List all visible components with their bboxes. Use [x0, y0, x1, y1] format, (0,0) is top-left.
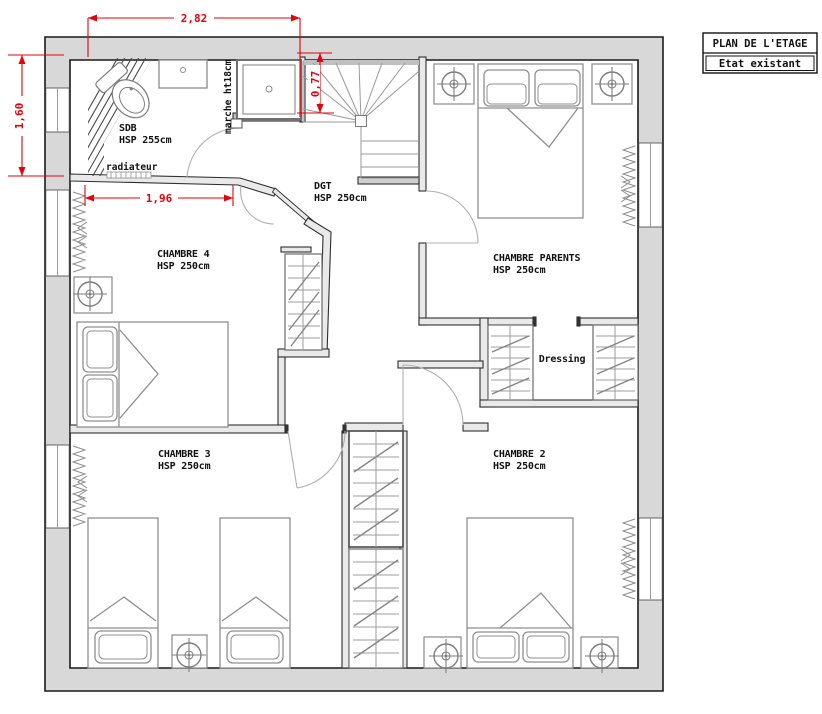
label-chambre2: CHAMBRE 2 [493, 449, 546, 460]
radiator-chambre3 [73, 446, 87, 526]
label-radiator: radiateur [106, 162, 158, 173]
radiator-chambre-parents [621, 146, 635, 226]
dim-stair-width-label: 0,77 [309, 71, 322, 98]
sink [159, 60, 207, 88]
dim-top-width-label: 2,82 [181, 12, 208, 25]
floor-plan-drawing: 2,82 1,60 0,77 [0, 0, 822, 714]
floor-plan-page: 2,82 1,60 0,77 [0, 0, 822, 714]
legend: PLAN DE L'ETAGE Etat existant [703, 33, 817, 73]
label-dgt: DGT [314, 181, 332, 192]
wardrobe-chambre4 [285, 254, 322, 350]
bed-chambre4 [77, 322, 228, 427]
window-right-chambre2 [639, 518, 662, 600]
chambre2-door-arc [403, 365, 463, 425]
label-chambre4: CHAMBRE 4 [157, 249, 210, 260]
window-right-chambre-parents [639, 143, 662, 227]
bed-chambre-parents [478, 64, 583, 218]
label-sdb: SDB [119, 123, 137, 134]
sdb-door-arc [187, 128, 240, 177]
dim-left-height-label: 1,60 [13, 103, 26, 130]
legend-title: PLAN DE L'ETAGE [713, 38, 808, 50]
window-left-chambre3 [46, 445, 69, 528]
label-chambre3-height: HSP 250cm [158, 461, 211, 472]
shower [237, 60, 301, 119]
label-chambre-parents-height: HSP 250cm [493, 265, 546, 276]
dimension-chambre4-wall: 1,96 [85, 185, 233, 206]
chambre-parents-door-arc [426, 191, 478, 243]
radiator-chambre2 [621, 519, 635, 599]
chambre3-door-arc [297, 431, 345, 488]
label-chambre3: CHAMBRE 3 [158, 449, 211, 460]
window-left-sdb [46, 88, 69, 132]
label-sdb-height: HSP 255cm [119, 135, 172, 146]
dim-chambre4-wall-label: 1,96 [146, 192, 173, 205]
closet-corridor-lower [349, 549, 403, 668]
label-step: marche ht18cm [223, 59, 234, 134]
closet-corridor-upper [349, 431, 403, 547]
label-dressing: Dressing [539, 353, 586, 365]
label-chambre4-height: HSP 250cm [157, 261, 210, 272]
bathroom-fixtures [40, 45, 301, 195]
label-dgt-height: HSP 250cm [314, 193, 367, 204]
bed-chambre3-right [220, 518, 290, 668]
closet-dressing-left [488, 325, 533, 400]
label-chambre2-height: HSP 250cm [493, 461, 546, 472]
bed-chambre3-left [88, 518, 158, 668]
closet-dressing-right [593, 325, 638, 400]
closets [285, 254, 638, 668]
label-chambre-parents: CHAMBRE PARENTS [493, 253, 580, 264]
legend-status: Etat existant [719, 58, 801, 70]
bed-chambre2 [467, 518, 573, 668]
window-left-chambre4 [46, 190, 69, 276]
